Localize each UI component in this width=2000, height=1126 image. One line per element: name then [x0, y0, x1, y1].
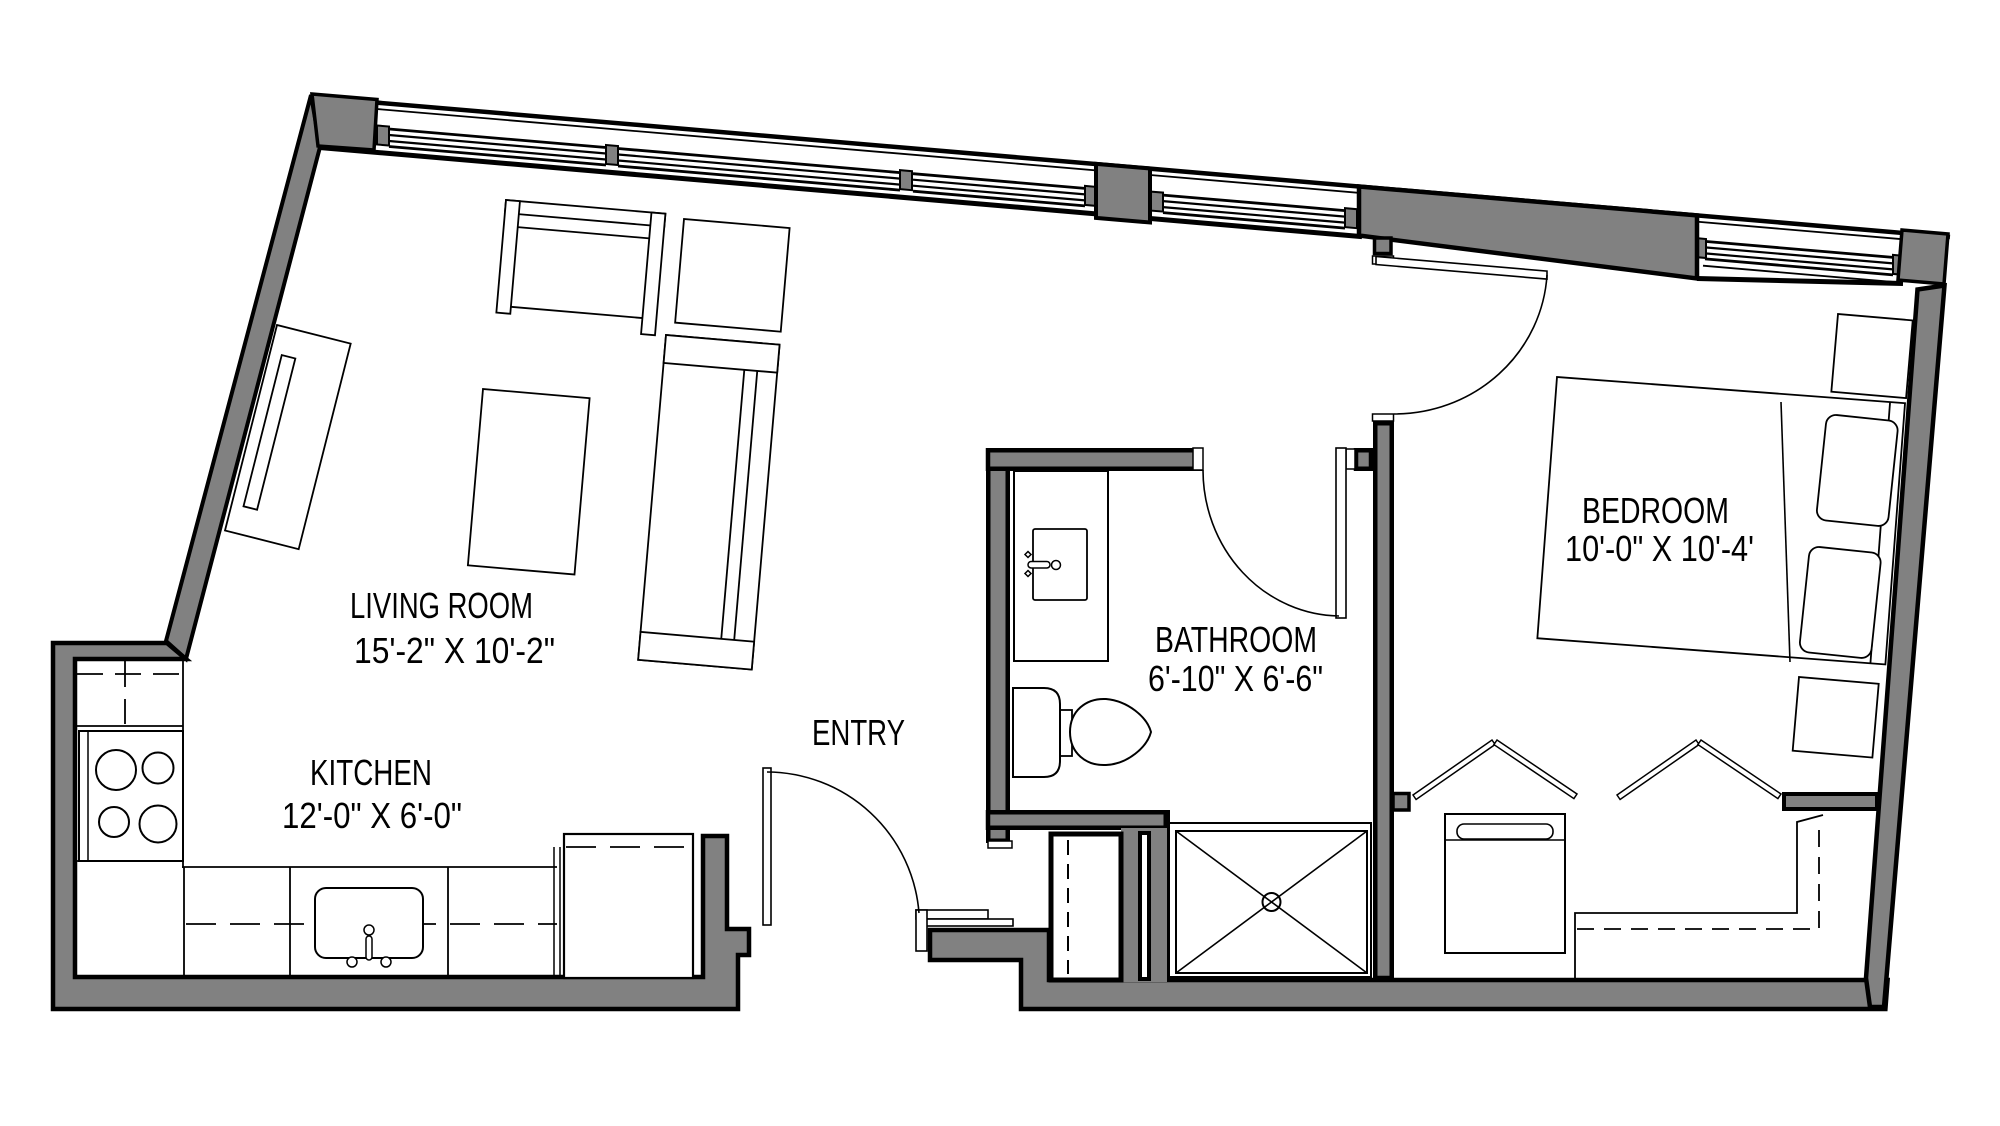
svg-text:12'-0" X 6'-0": 12'-0" X 6'-0": [282, 795, 462, 836]
svg-text:ENTRY: ENTRY: [812, 712, 905, 753]
svg-text:BATHROOM: BATHROOM: [1155, 619, 1317, 660]
svg-text:15'-2" X 10'-2": 15'-2" X 10'-2": [354, 630, 555, 671]
svg-text:KITCHEN: KITCHEN: [310, 752, 432, 793]
svg-text:10'-0" X 10'-4': 10'-0" X 10'-4': [1565, 528, 1754, 569]
svg-text:LIVING ROOM: LIVING ROOM: [350, 585, 533, 626]
svg-text:6'-10" X 6'-6": 6'-10" X 6'-6": [1148, 658, 1323, 699]
svg-text:BEDROOM: BEDROOM: [1582, 490, 1729, 531]
